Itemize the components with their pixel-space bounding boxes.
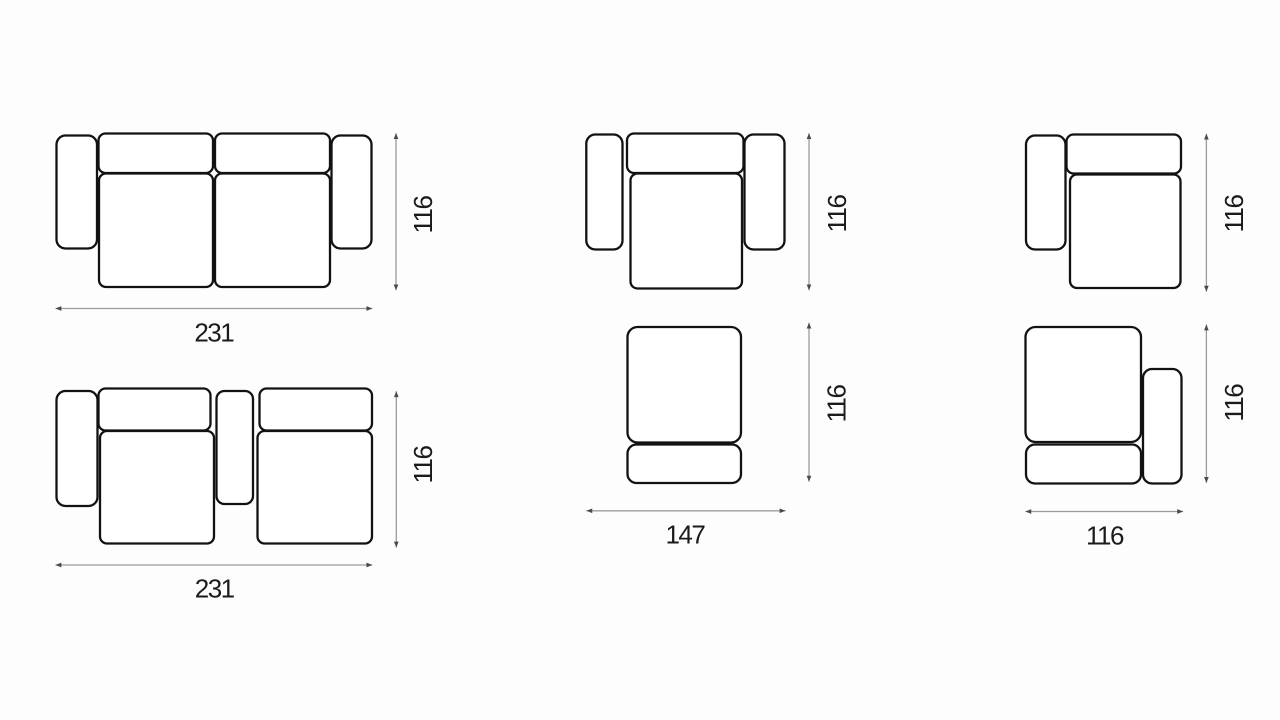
- svg-text:147: 147: [665, 520, 705, 550]
- svg-text:116: 116: [1086, 521, 1124, 551]
- svg-text:116: 116: [408, 195, 438, 233]
- svg-text:116: 116: [1219, 194, 1249, 232]
- svg-text:116: 116: [408, 445, 438, 483]
- svg-text:231: 231: [194, 318, 234, 348]
- svg-text:116: 116: [822, 194, 852, 232]
- svg-text:116: 116: [1219, 384, 1249, 422]
- svg-text:231: 231: [195, 574, 235, 604]
- svg-text:116: 116: [822, 384, 852, 422]
